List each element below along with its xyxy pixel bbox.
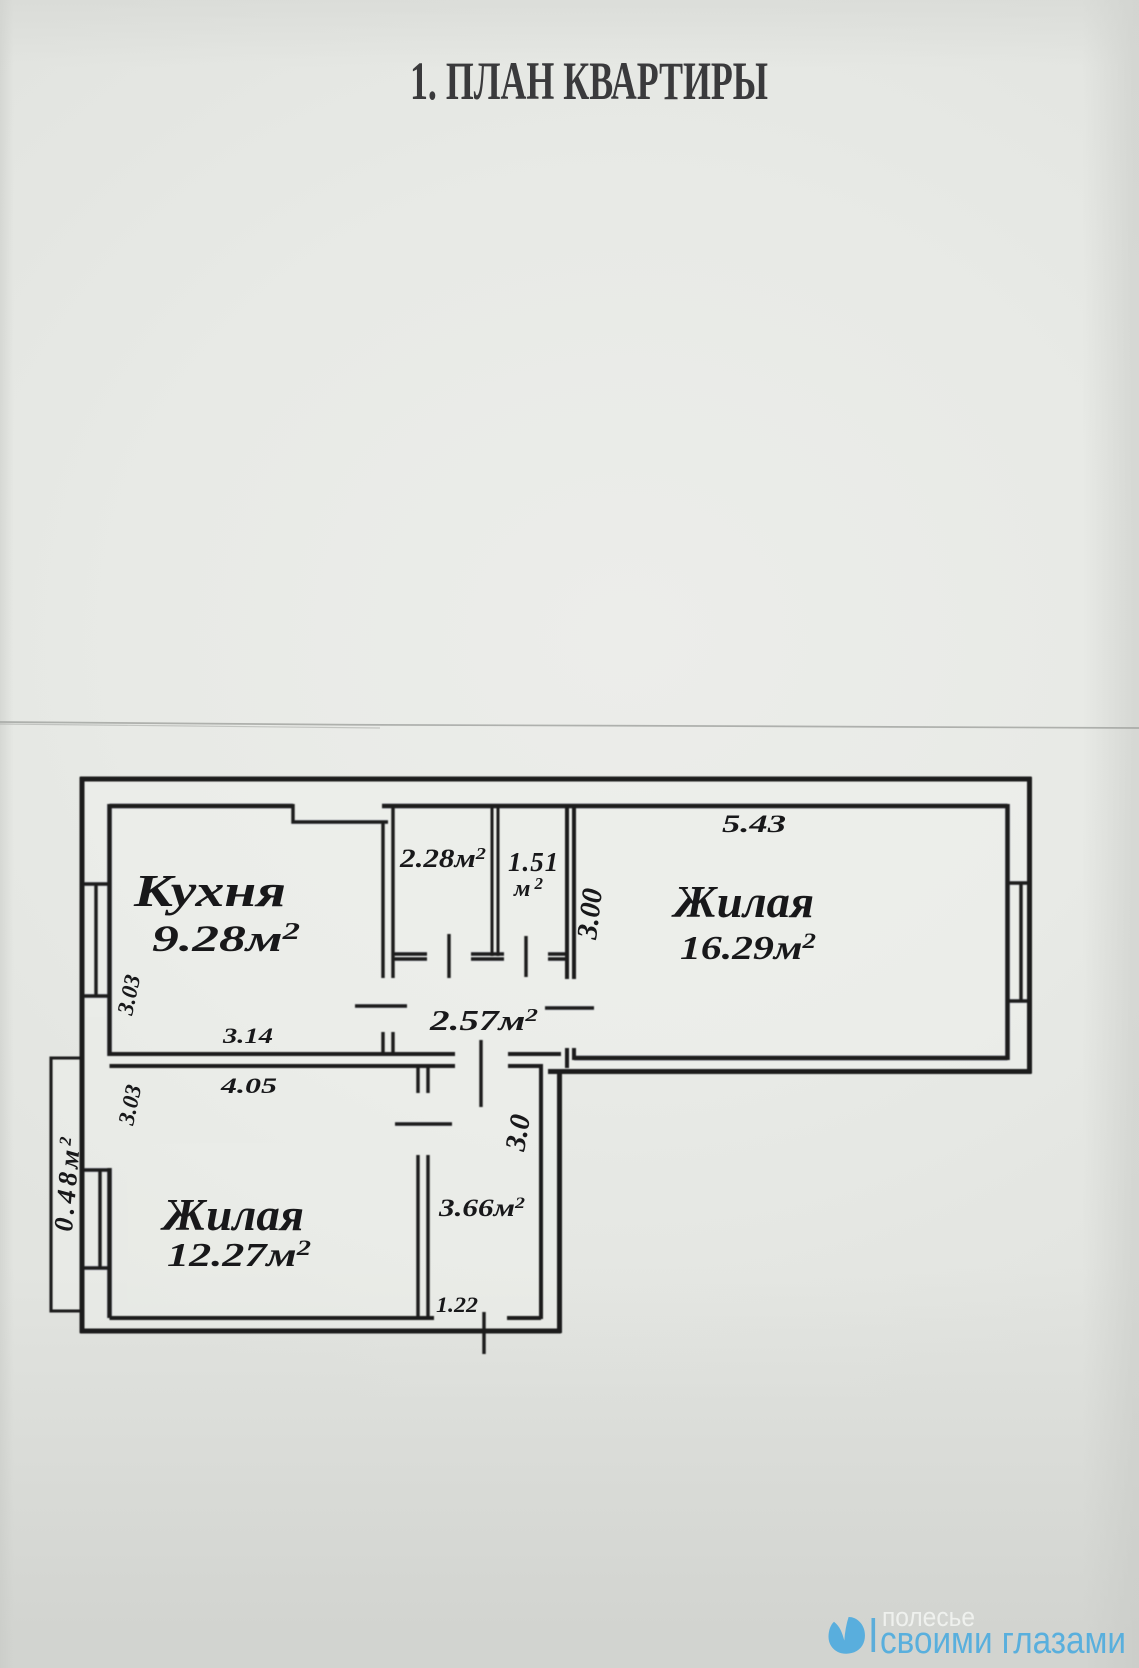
svg-text:5.43: 5.43 bbox=[722, 811, 786, 838]
svg-text:12.27м2: 12.27м2 bbox=[167, 1235, 311, 1274]
svg-text:2.57м2: 2.57м2 bbox=[429, 1005, 538, 1037]
svg-text:Жилая: Жилая bbox=[671, 877, 814, 927]
svg-text:9.28м2: 9.28м2 bbox=[152, 919, 300, 960]
svg-text:16.29м2: 16.29м2 bbox=[680, 928, 816, 967]
svg-text:3.66м2: 3.66м2 bbox=[438, 1195, 525, 1222]
svg-text:1.22: 1.22 bbox=[436, 1292, 478, 1317]
svg-text:1. ПЛАН КВАРТИРЫ: 1. ПЛАН КВАРТИРЫ bbox=[410, 51, 768, 111]
svg-text:Жилая: Жилая bbox=[160, 1190, 304, 1240]
svg-text:4.05: 4.05 bbox=[220, 1073, 277, 1098]
svg-text:3.14: 3.14 bbox=[222, 1023, 273, 1048]
svg-text:3.00: 3.00 bbox=[571, 887, 609, 942]
svg-text:1.51: 1.51 bbox=[508, 847, 559, 877]
svg-text:Кухня: Кухня bbox=[133, 865, 286, 916]
svg-text:2.28м2: 2.28м2 bbox=[399, 844, 487, 873]
svg-text:3.0: 3.0 bbox=[499, 1112, 537, 1154]
svg-text:своими глазами: своими глазами bbox=[880, 1620, 1126, 1662]
